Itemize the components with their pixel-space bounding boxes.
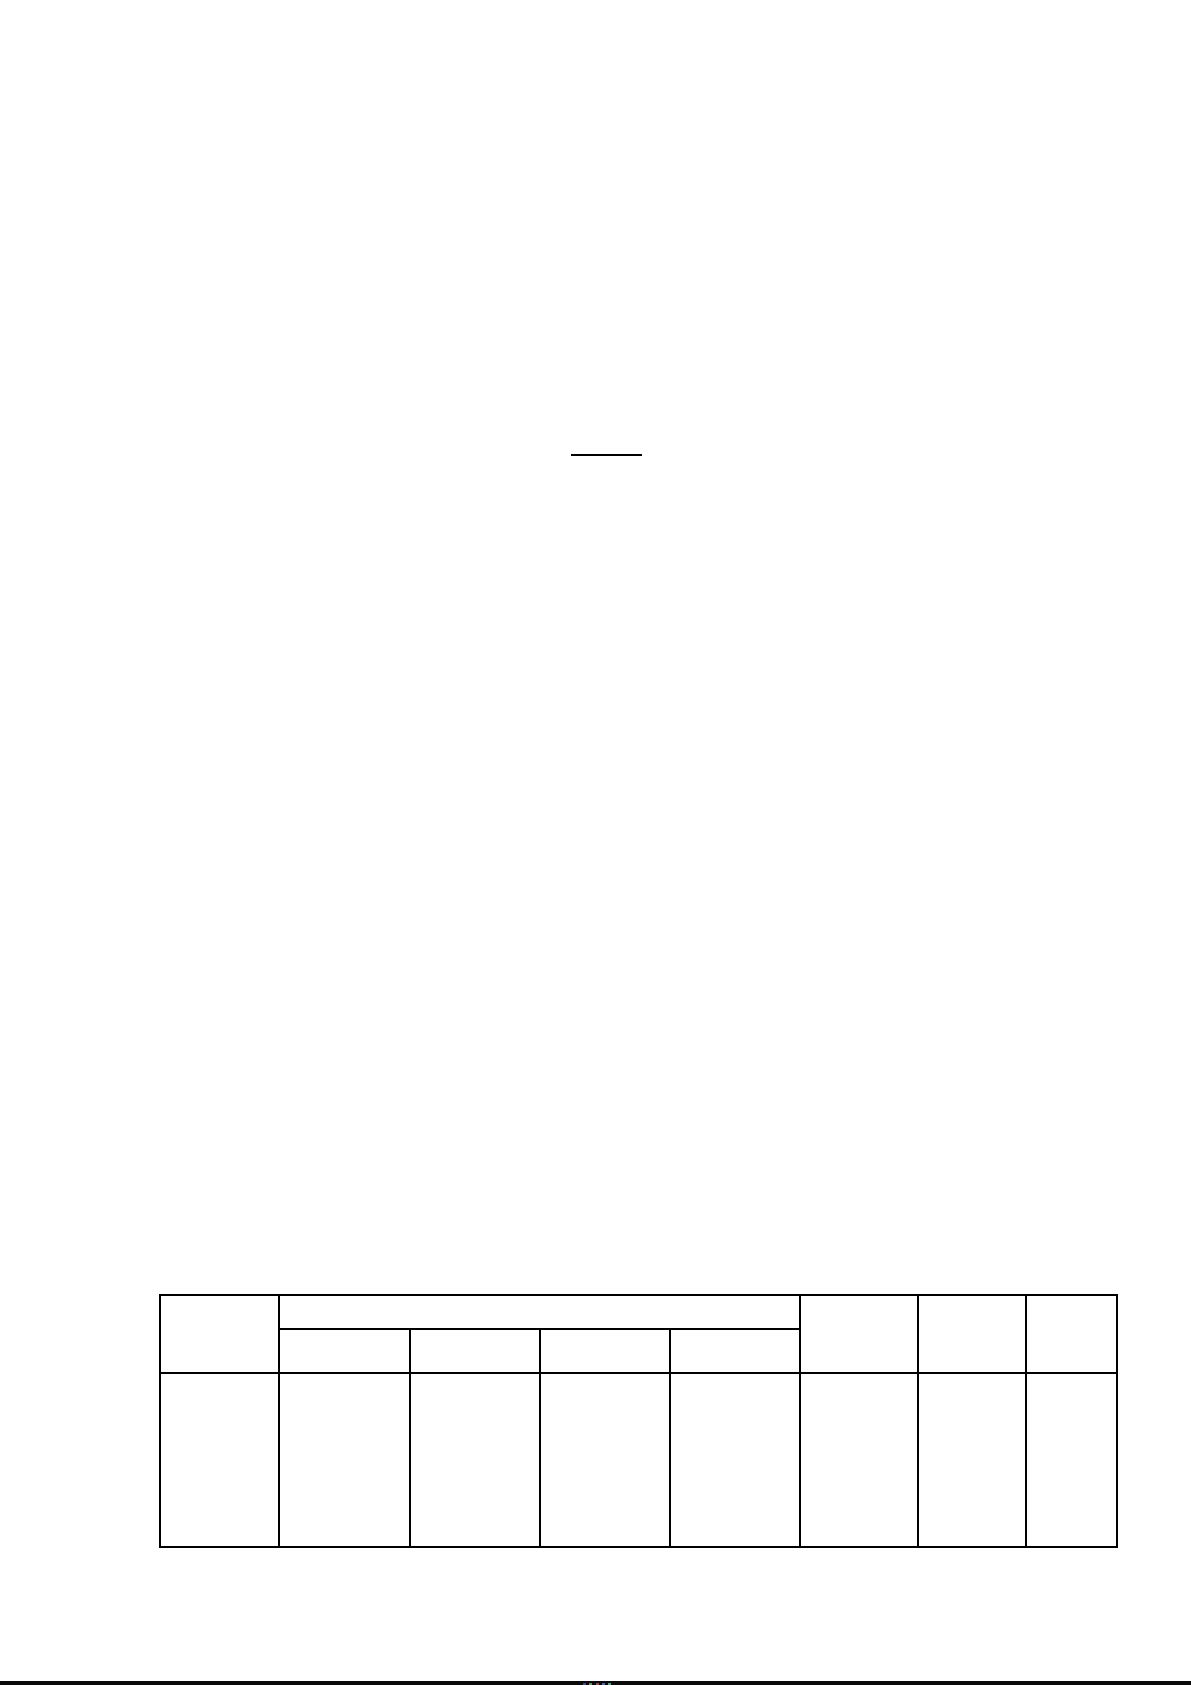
table-subheader-cell-4[interactable] [670,1329,800,1373]
table-header-cell-right-1[interactable] [800,1295,918,1373]
blank-underline[interactable] [571,454,642,456]
table-subheader-cell-1[interactable] [279,1329,410,1373]
table-header-row-1 [160,1295,1117,1329]
table-body-cell-7[interactable] [918,1373,1026,1547]
table-subheader-cell-3[interactable] [540,1329,670,1373]
document-page [0,0,1191,1685]
table-merged-header-cell[interactable] [279,1295,800,1329]
table-body-row [160,1373,1117,1547]
table-body-cell-4[interactable] [540,1373,670,1547]
table-body-cell-1[interactable] [160,1373,279,1547]
bottom-edge-bar [0,1681,1191,1685]
table-body-cell-2[interactable] [279,1373,410,1547]
table-header-cell-right-3[interactable] [1026,1295,1117,1373]
table-body-cell-6[interactable] [800,1373,918,1547]
table-header-cell-right-2[interactable] [918,1295,1026,1373]
empty-data-table [159,1294,1118,1548]
table-body-cell-5[interactable] [670,1373,800,1547]
table-corner-cell[interactable] [160,1295,279,1373]
table-body-cell-8[interactable] [1026,1373,1117,1547]
table-body-cell-3[interactable] [410,1373,540,1547]
table-subheader-cell-2[interactable] [410,1329,540,1373]
